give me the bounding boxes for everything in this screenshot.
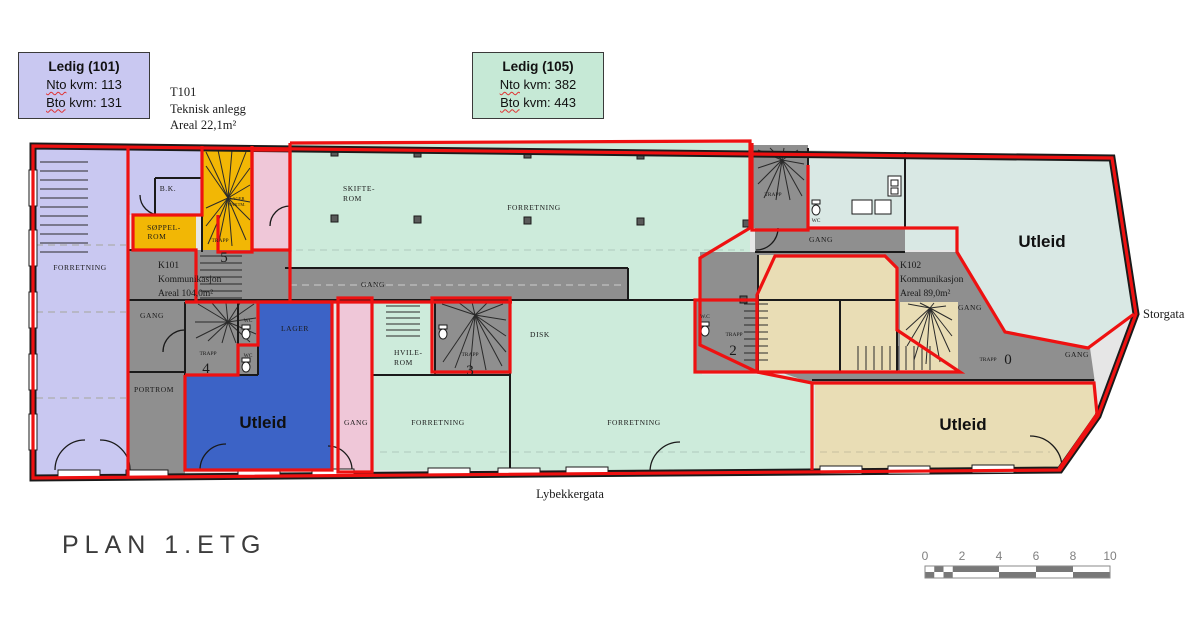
room-label-gang-pink: GANG (344, 418, 368, 427)
toilet-icon (242, 325, 250, 339)
toilet-icon (812, 200, 820, 215)
room-label-hvile-2: ROM (394, 358, 413, 367)
room-label-gang-k101: GANG (140, 311, 164, 320)
room-label-wc-2: WC (244, 353, 253, 359)
room-label-disk: DISK (530, 330, 550, 339)
street-label-storgata: Storgata (1143, 307, 1185, 321)
scale-bar: 0 2 4 6 8 10 (922, 549, 1117, 578)
scale-tick-8: 8 (1070, 549, 1077, 563)
room-label-k101-id: K101 (158, 261, 179, 271)
room-label-trapp4-num: 4 (202, 361, 210, 377)
toilet-icon (242, 358, 250, 372)
scale-tick-4: 4 (996, 549, 1003, 563)
room-label-trapp0-num: 0 (1004, 352, 1012, 368)
scale-tick-0: 0 (922, 549, 929, 563)
floor-plan-page: Ledig (101) Nto kvm: 113 Bto kvm: 131 T1… (0, 0, 1200, 639)
room-label-portrom: PORTROM (134, 385, 174, 394)
room-label-trapp2-num: 2 (729, 343, 737, 359)
room-label-forretning-top: FORRETNING (507, 203, 561, 212)
room-label-k101-name: Kommunikasjon (158, 275, 222, 285)
room-label-forretning-bl: FORRETNING (411, 418, 465, 427)
room-label-trapp4: TRAPP (199, 351, 216, 357)
room-label-trapp5: TRAPP (211, 238, 228, 244)
room-label-k101-area: Areal 104,0m² (158, 289, 213, 299)
room-label-forretning-br: FORRETNING (607, 418, 661, 427)
room-label-utleid-cyan: Utleid (1018, 232, 1065, 251)
room-label-trapp0: TRAPP (979, 357, 996, 363)
floor-plan-svg: FORRETNING B.K. SØPPEL- ROM LAGER VAKTM.… (0, 0, 1200, 639)
room-label-k102-id: K102 (900, 261, 921, 271)
room-label-k102-area: Areal 89,0m² (900, 289, 950, 299)
room-label-wc-trapp1: WC (812, 218, 821, 224)
toilet-icon (701, 322, 709, 336)
room-label-wc-1: WC (244, 318, 253, 324)
room-label-utleid-tan: Utleid (939, 415, 986, 434)
scale-bar-cells (925, 566, 1110, 578)
room-label-gang-topright: GANG (809, 235, 833, 244)
room-label-trapp5-num: 5 (220, 250, 228, 266)
room-label-hvile-1: HVILE- (394, 348, 423, 357)
room-label-lager: LAGER (281, 324, 309, 333)
room-label-forretning: FORRETNING (53, 263, 107, 272)
toilet-icon (439, 325, 447, 339)
room-label-soppel-2: ROM (148, 232, 167, 241)
room-label-trapp2: TRAPP (725, 332, 742, 338)
room-label-wc-trapp2: W.C (700, 314, 710, 320)
room-label-utleid-blue: Utleid (239, 413, 286, 432)
room-label-k102-name: Kommunikasjon (900, 275, 964, 285)
street-label-lybekkergata: Lybekkergata (536, 487, 604, 501)
room-label-soppel-1: SØPPEL- (147, 223, 181, 232)
scale-tick-10: 10 (1103, 549, 1117, 563)
room-label-bk: B.K. (160, 184, 177, 193)
room-label-lager-vaktm-2: VAKTM. (228, 202, 245, 207)
scale-tick-2: 2 (959, 549, 966, 563)
room-label-gang-mid: GANG (361, 280, 385, 289)
room-label-skifte-1: SKIFTE- (343, 184, 375, 193)
room-label-gang-right: GANG (958, 303, 982, 312)
room-label-trapp1: TRAPP (764, 192, 781, 198)
room-label-trapp3-num: 3 (466, 363, 474, 379)
room-label-lager-vaktm-1: LAGER (230, 196, 245, 201)
room-label-skifte-2: ROM (343, 194, 362, 203)
room-label-trapp3: TRAPP (461, 352, 478, 358)
room-label-gang-strip: GANG (1065, 350, 1089, 359)
scale-tick-6: 6 (1033, 549, 1040, 563)
